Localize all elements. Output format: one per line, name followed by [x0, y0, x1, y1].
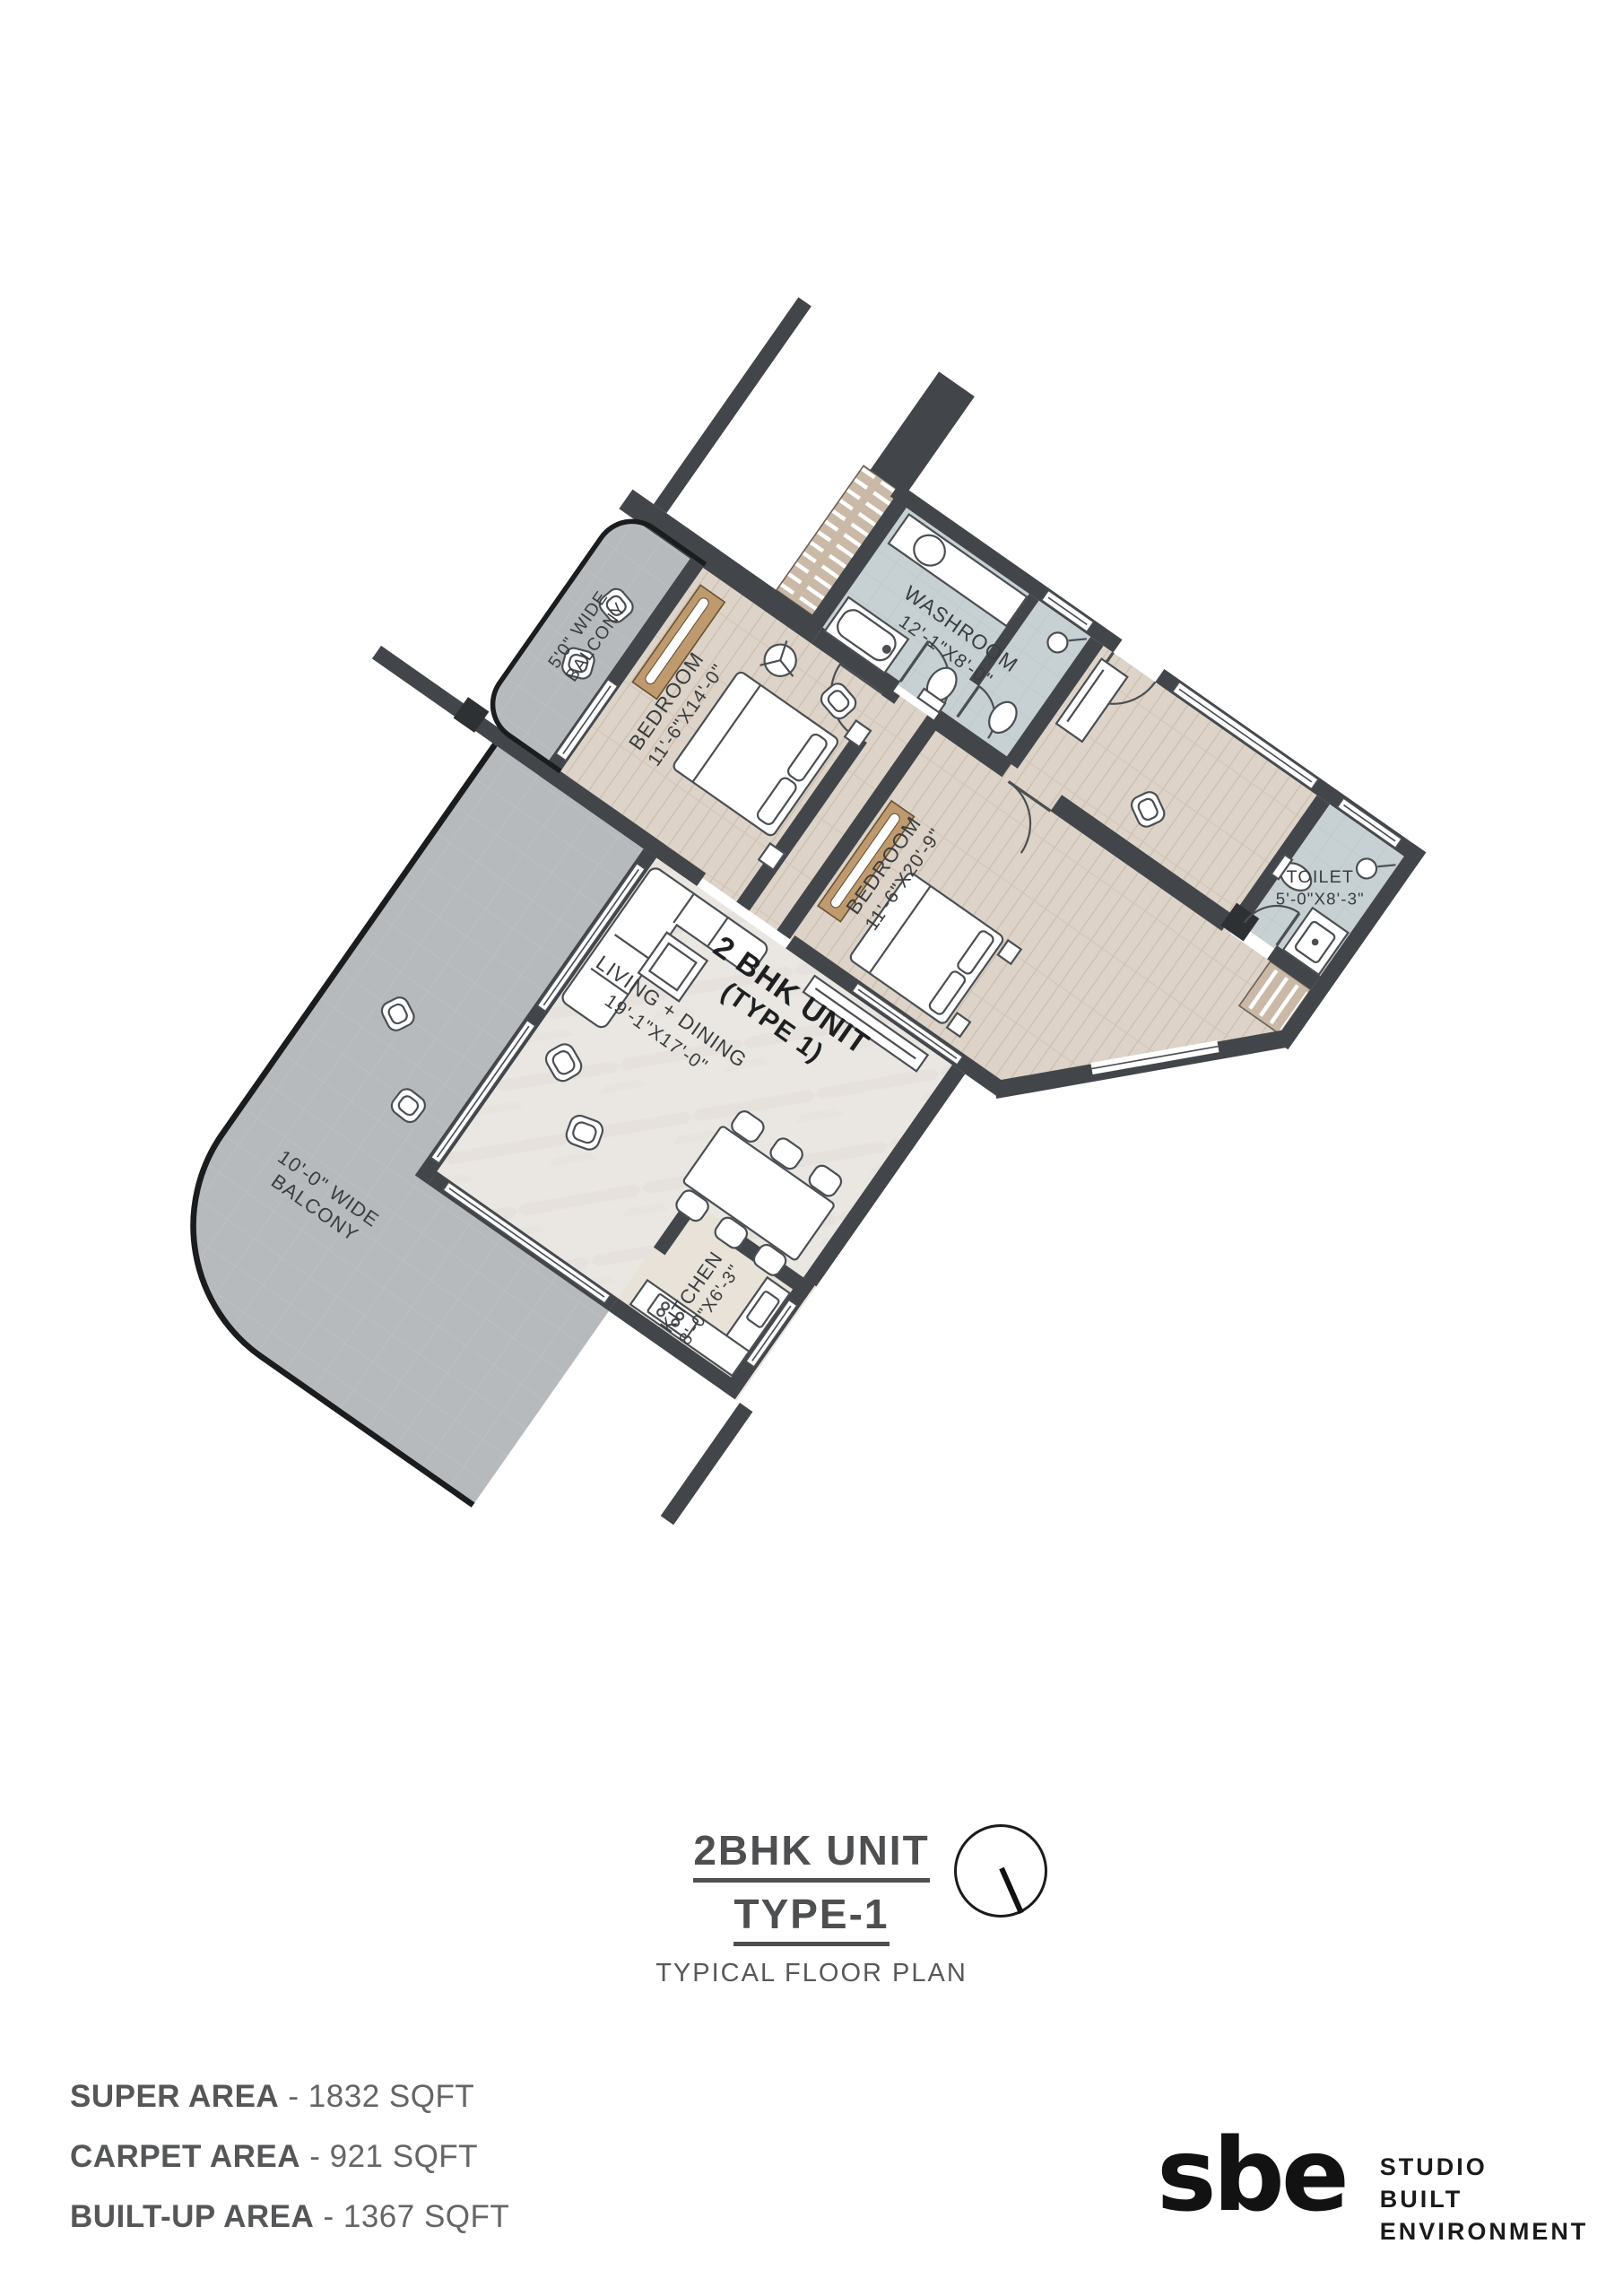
builtup-area-label: BUILT-UP AREA — [70, 2199, 314, 2234]
logo-text-line3: ENVIRONMENT — [1380, 2215, 1589, 2248]
floor-plan-page: WASHROOM 12'-1"X8'-0" TOILET 5'-0"X8'-3"… — [0, 0, 1623, 2296]
north-indicator-icon — [954, 1824, 1047, 1918]
logo-text-line1: STUDIO — [1380, 2151, 1589, 2183]
plan-title-line1: 2BHK UNIT — [693, 1826, 929, 1883]
super-area-value: - 1832 SQFT — [288, 2079, 474, 2114]
builtup-area-value: - 1367 SQFT — [323, 2199, 509, 2234]
carpet-area-value: - 921 SQFT — [309, 2139, 478, 2174]
toilet-dims: 5'-0"X8'-3" — [1276, 889, 1365, 908]
super-area-line: SUPER AREA - 1832 SQFT — [70, 2079, 509, 2115]
logo-mark: sbe — [1157, 2131, 1346, 2221]
logo-text-line2: BUILT — [1380, 2183, 1589, 2215]
area-summary: SUPER AREA - 1832 SQFT CARPET AREA - 921… — [70, 2079, 509, 2259]
carpet-area-line: CARPET AREA - 921 SQFT — [70, 2139, 509, 2175]
plan-subtitle: TYPICAL FLOOR PLAN — [587, 1959, 1036, 1988]
carpet-area-label: CARPET AREA — [70, 2139, 300, 2174]
plan-title-line2: TYPE-1 — [733, 1890, 889, 1946]
super-area-label: SUPER AREA — [70, 2079, 279, 2114]
studio-logo: sbe STUDIO BUILT ENVIRONMENT — [1157, 2131, 1588, 2248]
builtup-area-line: BUILT-UP AREA - 1367 SQFT — [70, 2199, 509, 2235]
toilet-label: TOILET — [1287, 867, 1355, 887]
logo-text: STUDIO BUILT ENVIRONMENT — [1380, 2151, 1589, 2248]
